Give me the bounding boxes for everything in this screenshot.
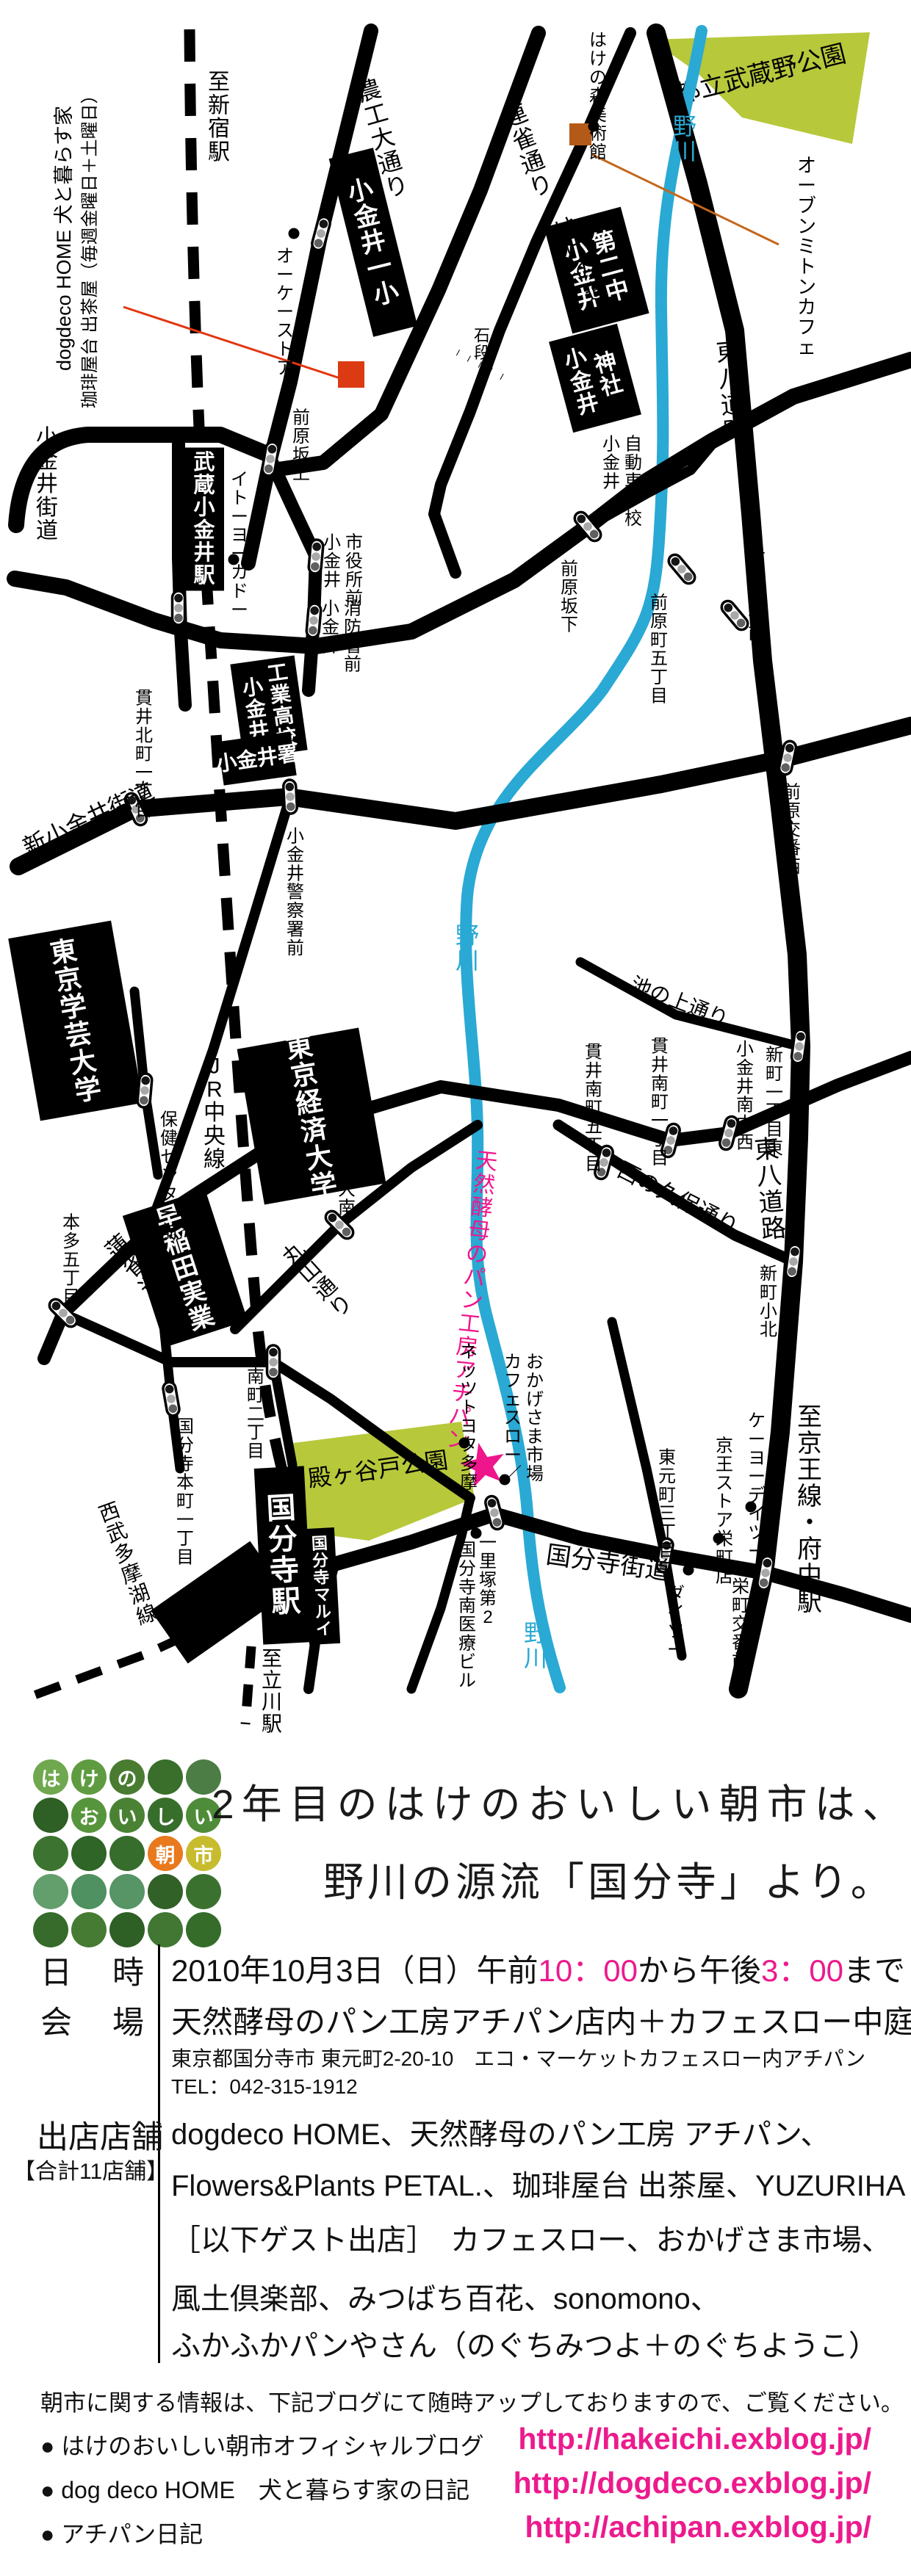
logo-circle [186,1912,221,1947]
logo-circle [109,1874,145,1909]
poi-label: 国分寺南医療ビル [458,1540,476,1690]
map-caption-line1: dogdeco HOME 犬と暮らす家 [53,106,75,371]
logo-circle [71,1912,107,1947]
poi-label: ケーヨーデイツー [748,1411,766,1561]
logo-circle [33,1912,68,1947]
guide-line [123,307,351,382]
event-map: 都立武蔵野公園殿ヶ谷戸公園dogdeco HOME 犬と暮らす家珈琲屋台 出茶屋… [0,0,911,1733]
logo-circle-市: 市 [186,1836,221,1871]
logo-circle-い: い [109,1798,145,1833]
signal-label: 栄町交番前 [732,1577,749,1671]
poi-dot [289,228,300,239]
blog-url-link[interactable]: http://achipan.exblog.jp/ [525,2510,872,2544]
detail-text: まで [843,1953,905,1988]
poi-label: はけの森美術館 [589,30,607,162]
logo-circle [33,1836,68,1871]
logo-circle [71,1874,107,1909]
logo-circle [109,1912,145,1947]
map-label: 至京王線・府中駅 [797,1403,822,1616]
logo-circle [109,1836,145,1871]
detail-text: 2010年10月3日（日）午前 [171,1953,539,1988]
title-line-1: 2年目のはけのおいしい朝市は、 [212,1771,910,1830]
poi-dot [471,1528,482,1539]
title-line-2: 野川の源流「国分寺」より。 [323,1849,895,1908]
poi-label: ダイソー [667,1584,685,1660]
detail-text: dogdeco HOME、天然酵母のパン工房 アチパン、 [171,2119,830,2151]
logo-circle-は: は [33,1759,68,1795]
map-label: 至立川駅 [262,1647,282,1733]
detail-text: Flowers&Plants PETAL.、珈琲屋台 出茶屋、YUZURIHA [171,2170,905,2202]
map-label: 野川 [524,1620,547,1671]
building-小金井署: 小金井署 [213,731,300,786]
detail-text: TEL：042-315-1912 [171,2075,358,2098]
detail-row: ［以下ゲスト出店］ カフェスロー、おかげさま市場、 [171,2216,891,2259]
logo-circle [148,1759,183,1795]
map-label: 野川 [673,113,696,164]
flyer-page: { "colors":{"pink":"#ec1a8d","river":"#2… [0,0,911,2576]
map-label: 西の久保通り [613,1158,742,1240]
signal-label: 前原町五丁目 [650,593,668,706]
detail-row: 天然酵母のパン工房アチパン店内＋カフェスロー中庭 [171,1997,911,2042]
traffic-signal-icon [137,1073,153,1107]
detail-label: 会 場 [40,1997,144,2043]
asaichi-logo: はけのおいしい朝市 [33,1759,221,1947]
traffic-signal-icon [267,1345,280,1379]
logo-circle-け: け [71,1759,107,1795]
detail-text: 東京都国分寺市 東元町2-20-10 エコ・マーケットカフェスロー内アチパン [171,2047,865,2070]
detail-row: ふかふかパンやさん（のぐちみつよ＋のぐちようこ） [171,2322,878,2365]
logo-circle [33,1874,68,1909]
logo-circle [148,1874,183,1909]
signal-label: 小金井南中西 [736,1039,754,1152]
map-label: オーブンミトンカフェ [797,154,816,358]
signal-label: 新町小北 [760,1264,777,1339]
poi-label: 京王ストア栄町店 [716,1436,733,1586]
time-highlight: 10：00 [539,1953,638,1988]
detail-row: 風土倶楽部、みつばち百花、sonomono、 [171,2275,720,2318]
logo-circle [71,1836,107,1871]
poi-label: イトーヨーカドー [231,469,248,620]
detail-label: 【合計11店舗】 [13,2153,168,2185]
traffic-signal-icon [484,1495,505,1531]
detail-text: から午後 [638,1953,761,1988]
logo-circle-し: し [148,1798,183,1833]
poi-dot [599,507,611,518]
poi-dot [683,1565,694,1576]
traffic-signal-icon [666,552,698,586]
signal-label: 一里塚第2 [479,1533,497,1627]
museum-marker [569,123,591,145]
map-label: 西武多摩湖線 [96,1498,160,1629]
logo-circle-の: の [109,1759,145,1795]
road [15,360,911,646]
traffic-signal-icon [173,591,185,625]
traffic-signal-icon [311,216,331,252]
poi-label: ネッツトヨタ多摩 [460,1342,478,1492]
logo-circle-朝: 朝 [148,1836,183,1871]
traffic-signal-icon [306,603,322,637]
railway [245,1646,251,1724]
detail-row: Flowers&Plants PETAL.、珈琲屋台 出茶屋、YUZURIHA [171,2162,905,2204]
detail-row: dogdeco HOME、天然酵母のパン工房 アチパン、 [171,2110,830,2153]
blog-url-link[interactable]: http://dogdeco.exblog.jp/ [514,2466,871,2500]
poi-label: オーケーストア [276,246,294,378]
detail-text: 天然酵母のパン工房アチパン店内＋カフェスロー中庭 [171,2005,911,2039]
time-highlight: 3：00 [761,1953,843,1988]
signal-label: 本多五丁目 [62,1212,80,1307]
building-国分寺駅: 国分寺駅 [254,1466,313,1644]
traffic-signal-icon [309,539,324,574]
building-小金井神社: 小金井神社 [549,324,641,433]
traffic-signal-icon [162,1381,181,1417]
signal-label: 東元町三丁目 [658,1447,676,1560]
traffic-signal-icon [283,780,297,814]
detail-text: ［以下ゲスト出店］ カフェスロー、おかげさま市場、 [171,2224,891,2257]
blog-label: ● アチパン日記 [40,2516,203,2550]
map-label: 小金井街道 [36,426,58,543]
logo-circle-お: お [71,1798,107,1833]
building-label: 武蔵小金井駅 [192,450,215,587]
signal-label: 小金井市役所前 [323,532,363,608]
logo-circle [148,1912,183,1947]
detail-label: 日 時 [40,1947,144,1993]
dechaya-marker [338,361,364,388]
blog-url-link[interactable]: http://hakeichi.exblog.jp/ [518,2422,871,2456]
detail-row: 2010年10月3日（日）午前10：00から午後3：00まで [171,1946,905,1991]
signal-label: 前原坂上 [292,408,310,483]
signal-label: 国分寺本町一丁目 [176,1417,194,1567]
building-国分寺マルイ: 国分寺マルイ [303,1527,340,1645]
blog-label: ● はけのおいしい朝市オフィシャルブログ [40,2428,484,2461]
road [179,441,185,705]
detail-text: 風土倶楽部、みつばち百花、sonomono、 [171,2283,720,2315]
signal-label: 東経大南 [338,1142,356,1218]
logo-circle [33,1798,68,1833]
traffic-signal-icon [719,598,751,632]
blog-label: ● dog deco HOME 犬と暮らす家の日記 [40,2472,469,2506]
detail-label: 出店店舗 [37,2112,163,2157]
signal-label: 小金井警察署前 [287,826,304,958]
signal-label: 前原交番西 [783,782,801,877]
map-label: 連雀通り [500,99,556,202]
building-東京学芸大学: 東京学芸大学 [8,921,143,1121]
building-東京経済大学: 東京経済大学 [236,1021,387,1210]
signal-label: 前原交番前 [748,549,766,643]
logo-circle [186,1874,221,1909]
map-caption-line2: 珈琲屋台 出茶屋（毎週金曜日＋土曜日） [80,86,100,408]
map-label: 至新宿駅 [208,70,230,164]
signal-label: 保健センター前 [160,1110,178,1242]
map-label: 野川 [455,922,479,974]
building-武蔵小金井駅: 武蔵小金井駅 [184,448,224,591]
detail-row: TEL：042-315-1912 [171,2071,358,2100]
map-label: 石段 [474,327,490,362]
signal-label: 貫井南町五丁目 [585,1042,602,1174]
signal-label: 前原坂下 [561,559,578,634]
detail-row: 東京都国分寺市 東元町2-20-10 エコ・マーケットカフェスロー内アチパン [171,2043,865,2072]
detail-text: ふかふかパンやさん（のぐちみつよ＋のぐちようこ） [171,2330,878,2362]
signal-label: 貫井南町一丁目 [651,1036,669,1168]
signal-label: 南町二丁目 [247,1367,264,1461]
footer-note: 朝市に関する情報は、下記ブログにて随時アップしておりますので、ご覧ください。 [40,2384,904,2417]
